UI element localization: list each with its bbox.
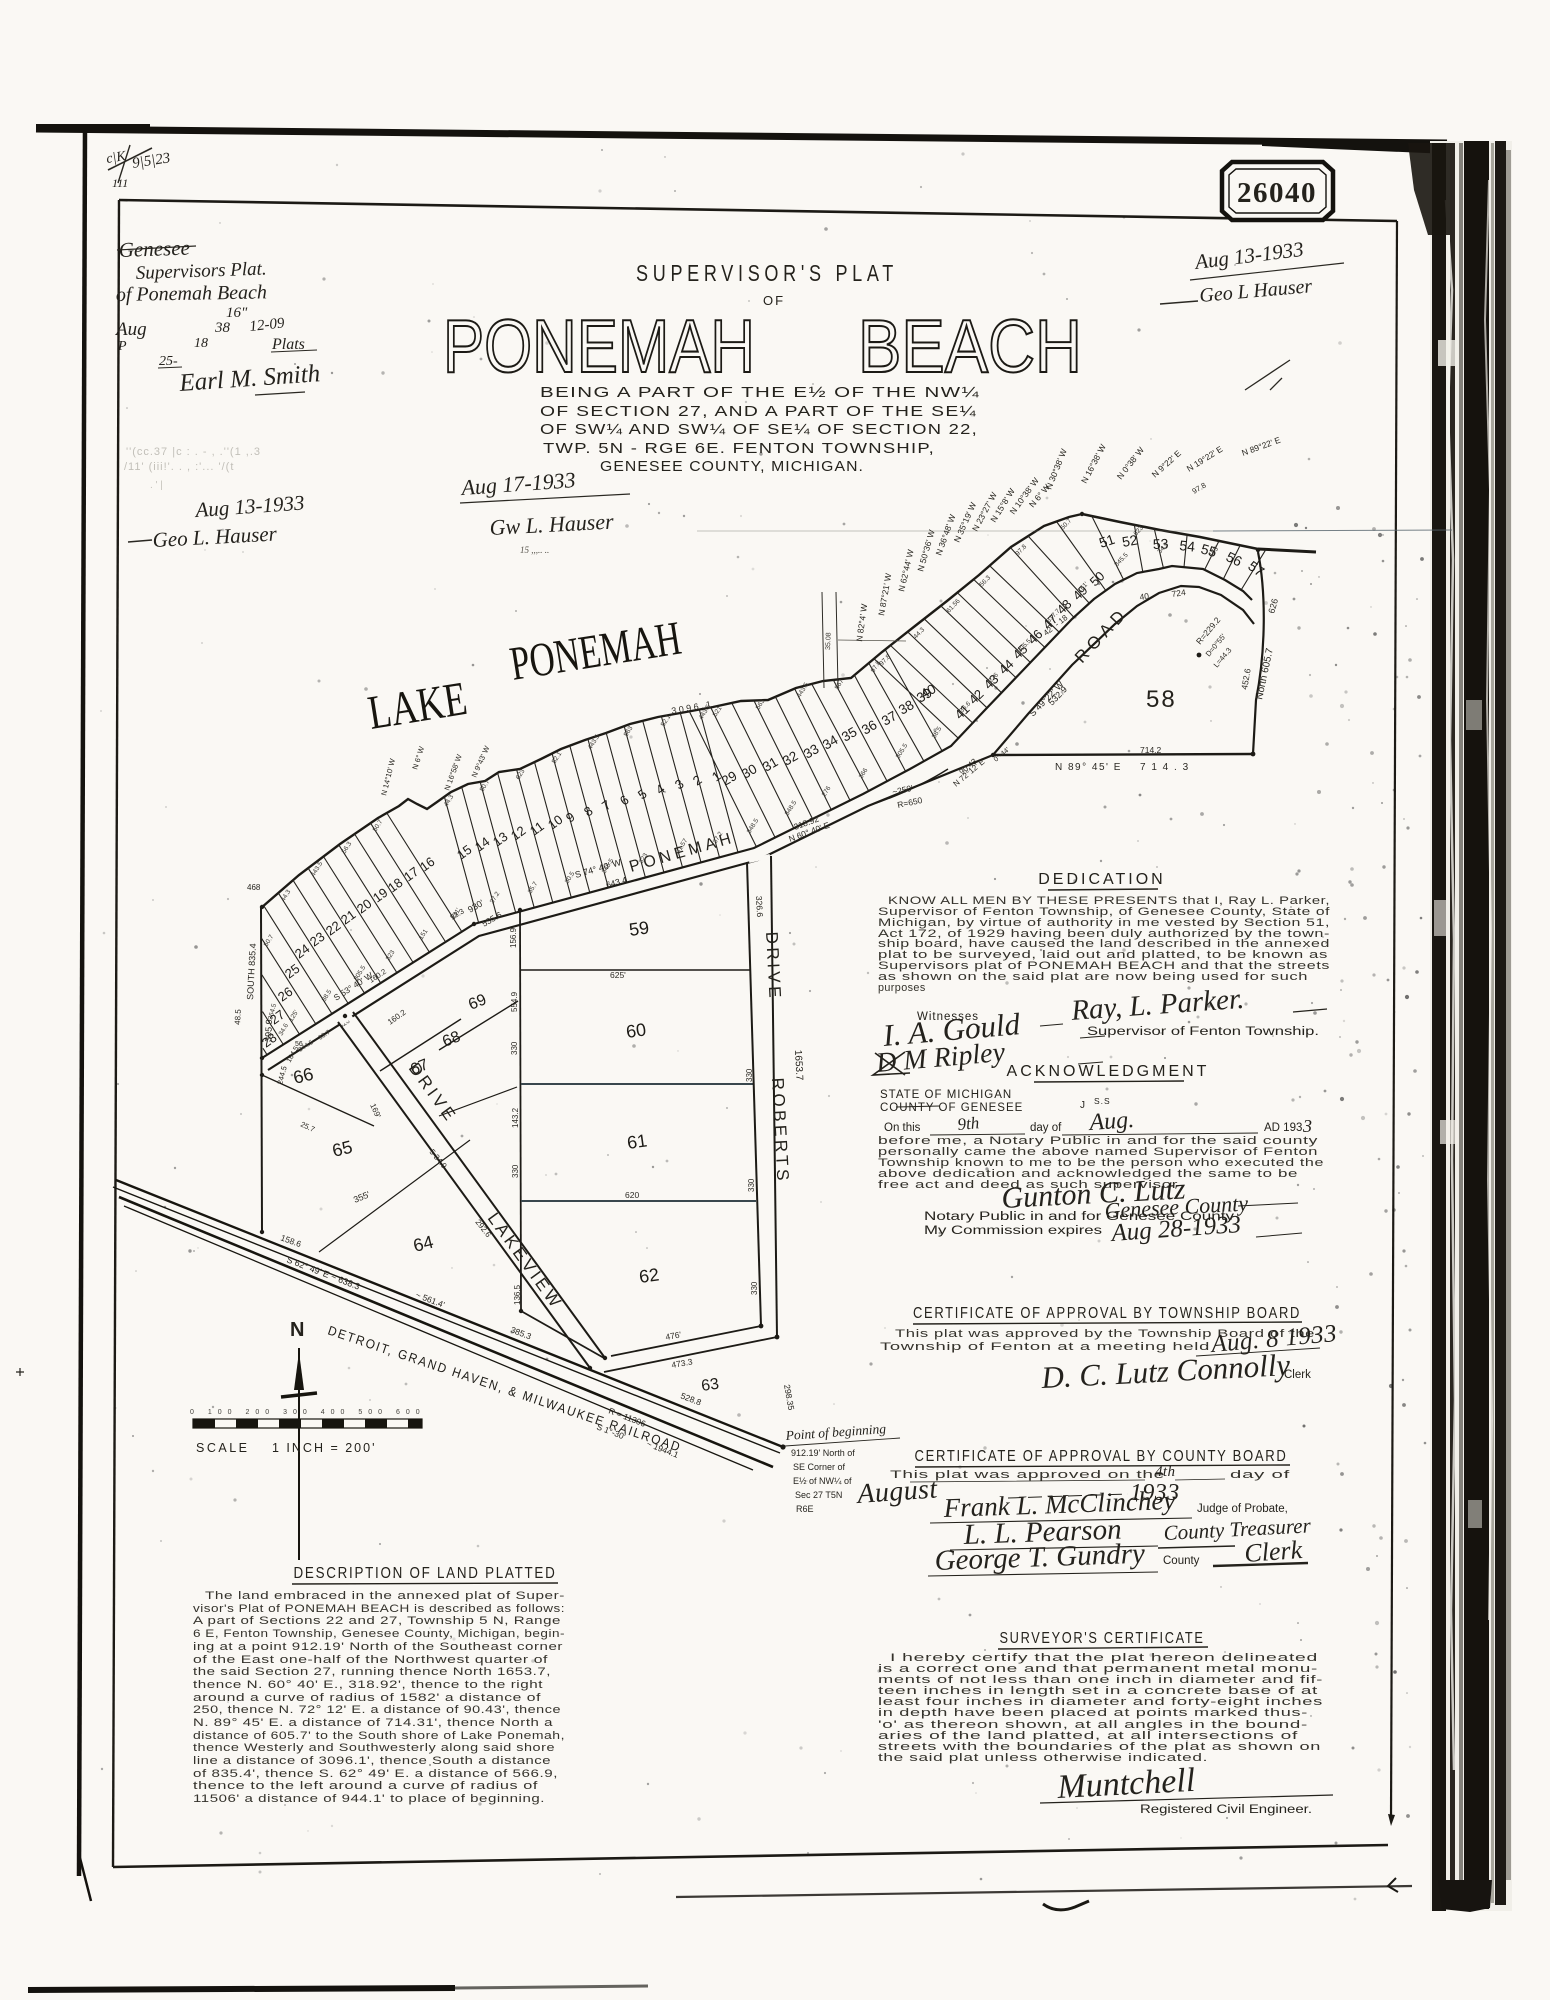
svg-text:136.5: 136.5 xyxy=(513,1284,522,1305)
svg-text:330: 330 xyxy=(747,1178,756,1192)
svg-text:9th: 9th xyxy=(957,1113,980,1134)
svg-text:ACKNOWLEDGMENT: ACKNOWLEDGMENT xyxy=(1007,1063,1210,1080)
svg-text:The land embraced in the annex: The land embraced in the annexed plat of… xyxy=(205,1590,565,1602)
svg-text:330: 330 xyxy=(750,1281,759,1295)
svg-text:as shown on the said plat are: as shown on the said plat are now being … xyxy=(878,971,1308,983)
svg-text:J: J xyxy=(1080,1100,1086,1111)
svg-text:''(cc.37 |c : . - , .''(1 ,.3: ''(cc.37 |c : . - , .''(1 ,.3 xyxy=(126,446,261,458)
svg-text:OF SW¼ AND SW¼ OF SE¼ OF SECTI: OF SW¼ AND SW¼ OF SE¼ OF SECTION 22, xyxy=(540,422,978,438)
svg-text:16": 16" xyxy=(226,305,248,321)
svg-text:distance of 605.7' to the Sout: distance of 605.7' to the South shore of… xyxy=(193,1730,565,1742)
svg-text:468: 468 xyxy=(247,883,261,892)
svg-text:STATE OF MICHIGAN: STATE OF MICHIGAN xyxy=(880,1089,1012,1101)
svg-text:. ' |: . ' | xyxy=(150,480,163,491)
svg-text:554.9: 554.9 xyxy=(510,991,519,1012)
svg-text:Supervisor of Fenton Township.: Supervisor of Fenton Township. xyxy=(1087,1026,1319,1038)
svg-text:40: 40 xyxy=(1139,591,1150,602)
svg-text:of 835.4', thence S. 62° 49' E: of 835.4', thence S. 62° 49' E. a distan… xyxy=(193,1768,558,1780)
svg-text:AD 193: AD 193 xyxy=(1264,1122,1302,1134)
svg-text:TWP. 5N - RGE 6E. FENTON TOWN: TWP. 5N - RGE 6E. FENTON TOWNSHIP, xyxy=(543,441,935,457)
svg-text:59: 59 xyxy=(628,917,651,940)
svg-text:3: 3 xyxy=(1302,1116,1312,1136)
svg-text:COUNTY OF GENESEE: COUNTY OF GENESEE xyxy=(880,1102,1023,1114)
svg-text:Judge of Probate,: Judge of Probate, xyxy=(1197,1503,1288,1515)
svg-text:line a distance of 3096.1', th: line a distance of 3096.1', thence South… xyxy=(193,1755,551,1767)
svg-text:BEING A PART OF THE E½ OF THE: BEING A PART OF THE E½ OF THE NW¼ xyxy=(540,385,980,401)
svg-text:My Commission expires: My Commission expires xyxy=(924,1225,1102,1237)
svg-text:15 ,,,.. ..: 15 ,,,.. .. xyxy=(520,545,549,555)
svg-text:/11' (iii!'. . , :'... '/(t: /11' (iii!'. . , :'... '/(t xyxy=(124,461,234,473)
svg-text:of the East one-half of the No: of the East one-half of the Northwest qu… xyxy=(193,1654,549,1666)
svg-text:724: 724 xyxy=(1171,587,1187,599)
svg-text:E½ of NW¼ of: E½ of NW¼ of xyxy=(793,1476,852,1486)
svg-text:250, thence N. 72° 12' E. a di: 250, thence N. 72° 12' E. a distance of … xyxy=(193,1704,561,1716)
svg-text:N 89° 45' E: N 89° 45' E xyxy=(1055,762,1122,773)
svg-text:R6E: R6E xyxy=(796,1504,814,1514)
svg-text:4th: 4th xyxy=(1155,1464,1175,1480)
svg-text:48.5: 48.5 xyxy=(233,1009,243,1026)
svg-text:the said plat unless otherwise: the said plat unless otherwise indicated… xyxy=(878,1752,1208,1764)
svg-text:DRIVE: DRIVE xyxy=(762,931,785,1001)
svg-text:GENESEE COUNTY, MICHIGAN.: GENESEE COUNTY, MICHIGAN. xyxy=(600,459,864,475)
svg-text:PONEMAH: PONEMAH xyxy=(443,304,755,388)
svg-text:Aug: Aug xyxy=(114,319,147,340)
svg-text:A part of Sections 22 and 27,: A part of Sections 22 and 27, Township 5… xyxy=(193,1615,561,1627)
svg-text:CERTIFICATE OF APPROVAL BY COU: CERTIFICATE OF APPROVAL BY COUNTY BOARD xyxy=(915,1448,1288,1465)
svg-text:61: 61 xyxy=(626,1130,649,1153)
svg-text:60: 60 xyxy=(625,1019,648,1042)
svg-text:620: 620 xyxy=(625,1190,639,1200)
svg-text:Sec 27 T5N: Sec 27 T5N xyxy=(795,1490,842,1500)
svg-text:143.2: 143.2 xyxy=(511,1107,520,1128)
svg-text:thence to the left around a cu: thence to the left around a curve of rad… xyxy=(193,1780,539,1792)
svg-text:330: 330 xyxy=(511,1164,520,1178)
svg-text:SUPERVISOR'S PLAT: SUPERVISOR'S PLAT xyxy=(636,260,898,286)
svg-text:around a curve of radius of 15: around a curve of radius of 1582' a dist… xyxy=(193,1692,542,1704)
svg-text:330: 330 xyxy=(745,1068,754,1082)
svg-text:Township of Fenton at a meetin: Township of Fenton at a meeting held xyxy=(880,1341,1210,1353)
svg-text:SCALE: SCALE xyxy=(196,1441,250,1455)
svg-text:c|K: c|K xyxy=(105,149,127,167)
svg-text:912.19' North of: 912.19' North of xyxy=(791,1448,855,1458)
svg-text:S.S: S.S xyxy=(1094,1096,1111,1106)
svg-text:of Ponemah Beach: of Ponemah Beach xyxy=(116,281,267,306)
svg-text:38: 38 xyxy=(214,320,231,336)
svg-text:625': 625' xyxy=(610,970,626,980)
svg-text:purposes: purposes xyxy=(878,982,926,994)
svg-text:visor's Plat of PONEMAH BEACH: visor's Plat of PONEMAH BEACH is describ… xyxy=(193,1603,565,1615)
svg-text:P: P xyxy=(117,339,127,354)
svg-text:35.08: 35.08 xyxy=(825,632,833,650)
svg-text:Registered Civil Engineer.: Registered Civil Engineer. xyxy=(1140,1804,1312,1816)
svg-text:SURVEYOR'S CERTIFICATE: SURVEYOR'S CERTIFICATE xyxy=(1000,1630,1205,1647)
svg-text:August: August xyxy=(854,1473,939,1510)
svg-text:62: 62 xyxy=(638,1264,661,1287)
svg-text:714.2: 714.2 xyxy=(1140,745,1162,755)
svg-text:day of: day of xyxy=(1230,1469,1291,1481)
svg-text:7 1 4 . 3: 7 1 4 . 3 xyxy=(1140,762,1190,773)
svg-text:63: 63 xyxy=(700,1376,720,1395)
svg-text:OF SECTION 27, AND A PART OF T: OF SECTION 27, AND A PART OF THE SE¼ xyxy=(540,404,977,420)
svg-text:On this: On this xyxy=(884,1122,921,1134)
svg-text:1653.7: 1653.7 xyxy=(792,1050,805,1082)
svg-text:County: County xyxy=(1163,1555,1200,1567)
svg-text:111: 111 xyxy=(112,176,128,190)
svg-text:DESCRIPTION OF LAND PLATTED: DESCRIPTION OF LAND PLATTED xyxy=(294,1565,557,1582)
svg-text:330: 330 xyxy=(510,1041,519,1055)
svg-text:day of: day of xyxy=(1030,1122,1062,1134)
svg-text:N: N xyxy=(290,1319,305,1341)
svg-text:the said Section 27, running t: the said Section 27, running thence Nort… xyxy=(193,1666,551,1678)
svg-text:Genesee: Genesee xyxy=(118,236,190,262)
svg-text:11506' a distance of 944.1' to: 11506' a distance of 944.1' to place of … xyxy=(193,1793,545,1805)
svg-text:326.6: 326.6 xyxy=(754,896,765,918)
svg-text:thence N. 60° 40' E., 318.92',: thence N. 60° 40' E., 318.92', thence to… xyxy=(193,1679,543,1691)
svg-text:26040: 26040 xyxy=(1237,177,1317,209)
svg-text:SE Corner of: SE Corner of xyxy=(793,1462,846,1472)
svg-text:18: 18 xyxy=(194,336,208,351)
svg-text:6 E, Fenton Township, Genesee: 6 E, Fenton Township, Genesee County, Mi… xyxy=(193,1628,565,1640)
svg-text:Clerk: Clerk xyxy=(1284,1369,1311,1381)
svg-text:0 100 200 300 400 500 600: 0 100 200 300 400 500 600 xyxy=(190,1409,426,1416)
svg-text:ing at a point 912.19' North o: ing at a point 912.19' North of the Sout… xyxy=(193,1641,563,1653)
svg-text:DEDICATION: DEDICATION xyxy=(1038,871,1165,888)
svg-text:in depth have been placed at p: in depth have been placed at points mark… xyxy=(878,1707,1308,1719)
svg-text:OF: OF xyxy=(763,293,785,308)
svg-text:BEACH: BEACH xyxy=(858,304,1082,388)
svg-text:thence Westerly and Southweste: thence Westerly and Southwesterly along … xyxy=(193,1742,555,1754)
svg-text:54: 54 xyxy=(1179,537,1196,555)
svg-text:25-: 25- xyxy=(159,354,178,369)
svg-text:58: 58 xyxy=(1146,686,1177,713)
svg-text:Aug.: Aug. xyxy=(1087,1107,1135,1136)
svg-text:N. 89° 45' E. a distance of 71: N. 89° 45' E. a distance of 714.31', the… xyxy=(193,1717,553,1729)
svg-text:156.9: 156.9 xyxy=(509,927,518,948)
svg-text:1 INCH = 200': 1 INCH = 200' xyxy=(272,1441,376,1455)
svg-text:CERTIFICATE OF APPROVAL BY TOW: CERTIFICATE OF APPROVAL BY TOWNSHIP BOAR… xyxy=(913,1305,1301,1322)
